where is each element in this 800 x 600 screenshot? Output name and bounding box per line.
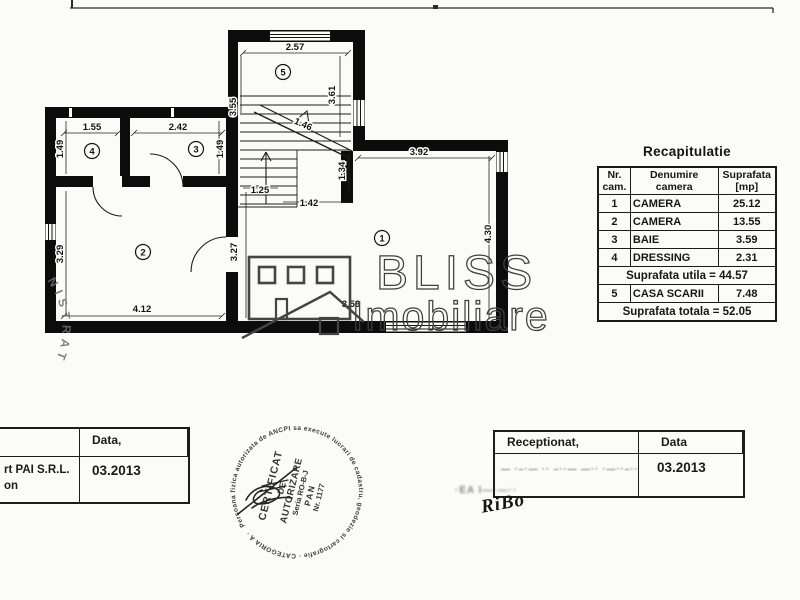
edge-stamp-text: NISTRAT: [45, 275, 74, 367]
reception-label: Receptionat,: [495, 432, 638, 449]
execution-date-label: Data,: [80, 429, 188, 457]
reception-label-cell: Receptionat,: [495, 432, 639, 454]
execution-firm-cell: rt PAI S.R.L. on: [0, 457, 80, 502]
firm-name: rt PAI S.R.L.: [4, 463, 79, 479]
reception-date-label: Data: [639, 432, 742, 449]
execution-header-cell: [0, 429, 80, 457]
svg-text:NISTRAT: NISTRAT: [45, 275, 74, 367]
execution-date-value: 03.2013: [80, 457, 188, 502]
left-edge-stamp-fragment: NISTRAT: [45, 275, 74, 367]
scanned-cadastral-sheet: 2.57 3.55 3.61 1.55 2.42 1.49 1.49 3.29 …: [0, 0, 800, 600]
stamps-layer: Persoana fizica autorizata de ANCPI sa e…: [0, 0, 800, 600]
reception-date-value: 03.2013: [639, 454, 743, 496]
execution-box: Data, rt PAI S.R.L. on 03.2013: [0, 427, 190, 504]
reception-box: Receptionat, Data — ·–·— ·· –··— —·· ·—·…: [493, 430, 745, 498]
firm-name-cont: on: [4, 479, 79, 495]
illegible-stamp-text: — ·–·— ·· –··— —·· ·—··–··—· a il I-JV: [495, 454, 638, 474]
round-authorization-stamp: Persoana fizica autorizata de ANCPI sa e…: [204, 399, 389, 585]
reception-date-label-cell: Data: [639, 432, 743, 454]
